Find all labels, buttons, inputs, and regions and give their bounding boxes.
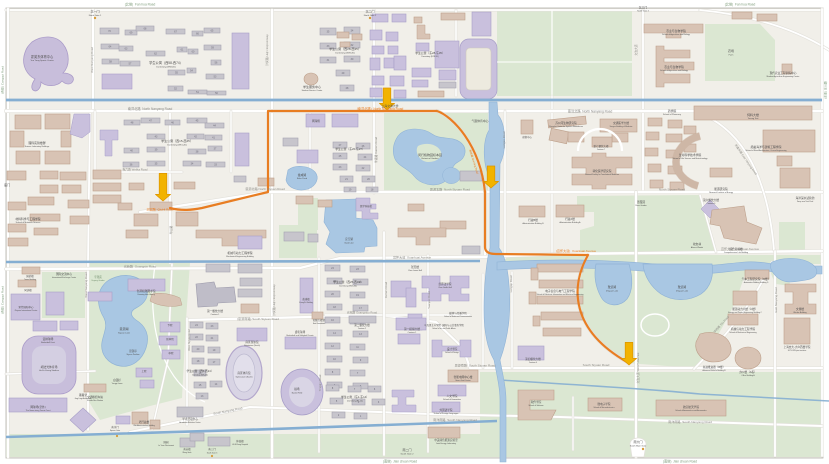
- svg-text:中院: 中院: [168, 351, 174, 355]
- svg-text:Student Service Center: Student Service Center: [302, 89, 323, 92]
- svg-text:Basketball and Volleyball Cour: Basketball and Volleyball Courts: [286, 334, 313, 337]
- svg-text:Automotive Building Building D: Automotive Building Building D: [744, 281, 769, 284]
- svg-text:Yangqi Lawn: Yangqi Lawn: [112, 383, 123, 385]
- svg-text:Gymnasium (South): Gymnasium (South): [236, 376, 253, 379]
- svg-text:宇琦苑: 宇琦苑: [94, 275, 102, 279]
- svg-text:School of Media and Communicat: School of Media and Communication: [444, 315, 472, 318]
- svg-text:思源亭: 思源亭: [129, 349, 137, 353]
- svg-text:国侨楼: 国侨楼: [26, 274, 34, 278]
- svg-text:Academic Activities Center: Academic Activities Center: [179, 421, 201, 424]
- svg-text:(思源南路) South Siyuan Road: (思源南路) South Siyuan Road: [237, 316, 279, 321]
- svg-text:Xangua Building of Medicine: Xangua Building of Medicine: [610, 126, 633, 128]
- svg-text:盛宅球场: 盛宅球场: [295, 330, 306, 334]
- svg-text:生命科学技术学院: 生命科学技术学院: [679, 153, 702, 157]
- svg-text:农业与生物学院: 农业与生物学院: [664, 65, 684, 69]
- svg-text:Wenbo Building: Wenbo Building: [793, 312, 806, 314]
- svg-text:East Nanyang Road: East Nanyang Road: [774, 287, 778, 312]
- svg-text:Tower Building: Tower Building: [24, 279, 36, 281]
- svg-text:思源北路 North Siyuan Road: 思源北路 North Siyuan Road: [245, 186, 285, 191]
- svg-text:第七餐饮大楼: 第七餐饮大楼: [593, 144, 609, 148]
- svg-text:学生公寓（西58-西74）: 学生公寓（西58-西74）: [149, 60, 183, 65]
- svg-text:East Foundation: East Foundation: [313, 322, 325, 325]
- svg-text:俊威湖: 俊威湖: [298, 173, 307, 177]
- svg-text:(西侧) Cangqui Road: (西侧) Cangqui Road: [0, 66, 5, 94]
- svg-text:West Yanyang Road: West Yanyang Road: [84, 272, 88, 298]
- svg-text:School of Agriculture and Biol: School of Agriculture and Biology: [662, 33, 690, 36]
- svg-text:The Swan string Tennis Court: The Swan string Tennis Court: [26, 409, 51, 412]
- svg-text:校友林: 校友林: [693, 242, 701, 246]
- svg-text:色调和瑞图书馆: 色调和瑞图书馆: [137, 289, 156, 293]
- svg-text:Canteen 1: Canteen 1: [211, 313, 220, 316]
- svg-text:海洋深水试验池: 海洋深水试验池: [796, 196, 815, 200]
- svg-text:North Gate 3: North Gate 3: [637, 10, 649, 13]
- svg-text:新中院: 新中院: [166, 337, 174, 341]
- svg-text:学生公寓（西28-西35）: 学生公寓（西28-西35）: [329, 46, 361, 51]
- svg-text:气膜体育中心: 气膜体育中心: [472, 119, 489, 123]
- svg-text:School of Materials Science: School of Materials Science: [16, 221, 42, 224]
- svg-text:外国语学院: 外国语学院: [440, 408, 453, 412]
- svg-text:Science Laboratory Buildings: Science Laboratory Buildings: [25, 145, 50, 148]
- svg-text:(北侧) Fan hua Road: (北侧) Fan hua Road: [125, 2, 156, 7]
- svg-text:学生服务中心: 学生服务中心: [303, 84, 321, 89]
- svg-text:饲料大楼: 饲料大楼: [747, 112, 759, 117]
- svg-text:School of Electronic Informati: School of Electronic Information and Ele…: [537, 293, 584, 296]
- svg-text:操场: 操场: [294, 387, 300, 391]
- svg-text:第二餐饮大楼: 第二餐饮大楼: [354, 323, 370, 327]
- svg-text:媒体与传播学院: 媒体与传播学院: [449, 311, 467, 315]
- svg-text:现代农业工程训练中心: 现代农业工程训练中心: [770, 71, 797, 75]
- svg-text:Tsuung Test: Tsuung Test: [748, 117, 759, 120]
- svg-text:Joint Energy Laboratory: Joint Energy Laboratory: [436, 442, 456, 445]
- svg-text:Xumen Road: Xumen Road: [384, 281, 388, 298]
- svg-text:Basketball Court: Basketball Court: [41, 341, 55, 344]
- svg-text:Square Gate: Square Gate: [110, 429, 120, 432]
- svg-text:中美绿色能源实验室: 中美绿色能源实验室: [434, 438, 458, 442]
- svg-text:West Nanyang Road: West Nanyang Road: [90, 47, 94, 73]
- svg-text:知新大楼堂: 知新大楼堂: [313, 318, 326, 322]
- svg-text:School of Software: School of Software: [528, 404, 543, 407]
- svg-text:紫竹国际中心: 紫竹国际中心: [18, 305, 34, 309]
- svg-text:Xuyang Garden: Xuyang Garden: [91, 279, 104, 282]
- svg-text:南大门: 南大门: [633, 439, 642, 444]
- svg-text:国园: 国园: [163, 440, 169, 444]
- svg-text:国际交流中心: 国际交流中心: [56, 272, 72, 276]
- svg-text:思源北路 North Siyuan Road: 思源北路 North Siyuan Road: [430, 187, 471, 192]
- svg-text:文博楼: 文博楼: [796, 307, 804, 311]
- svg-text:Farm: Farm: [729, 55, 734, 57]
- svg-text:School of Design: School of Design: [445, 352, 459, 354]
- svg-text:光新路 Guangxin Road: 光新路 Guangxin Road: [124, 264, 157, 269]
- svg-text:第一餐饮大楼: 第一餐饮大楼: [207, 309, 223, 313]
- svg-text:电子信息与电气工程学院: 电子信息与电气工程学院: [545, 289, 575, 293]
- svg-text:凯原法学院: 凯原法学院: [439, 282, 452, 286]
- svg-text:船舶海洋与建筑工程学院: 船舶海洋与建筑工程学院: [751, 145, 782, 149]
- svg-text:Canteen 2: Canteen 2: [358, 327, 366, 330]
- svg-text:菁菁堂: 菁菁堂: [79, 393, 87, 397]
- svg-text:仲英楼: 仲英楼: [236, 439, 244, 443]
- svg-text:理科实验楼群: 理科实验楼群: [28, 140, 45, 145]
- svg-text:Chan Gorilla Hall: Chan Gorilla Hall: [438, 287, 452, 289]
- svg-text:Yun Yong Sports Center: Yun Yong Sports Center: [30, 59, 54, 62]
- svg-text:Canteen 4: Canteen 4: [529, 361, 537, 364]
- svg-text:Siyuan Lake: Siyuan Lake: [118, 333, 131, 335]
- svg-text:南洋北路 North Nanyang Road: 南洋北路 North Nanyang Road: [128, 106, 173, 111]
- svg-text:南洋北路 North Nanyang Road: 南洋北路 North Nanyang Road: [568, 109, 613, 114]
- svg-text:Canteen 6: Canteen 6: [707, 202, 716, 205]
- svg-text:Deep sea Test Pool: Deep sea Test Pool: [797, 200, 814, 203]
- svg-text:第四餐饮大楼: 第四餐饮大楼: [525, 357, 541, 361]
- svg-text:下院: 下院: [167, 323, 173, 327]
- svg-text:Energy and Power Engineering B: Energy and Power Engineering Building C: [728, 312, 762, 314]
- svg-text:Basket Field: Basket Field: [292, 392, 302, 395]
- svg-text:闵行植物园标本园: 闵行植物园标本园: [418, 152, 442, 157]
- svg-text:School of Mechanical Engineeri: School of Mechanical Engineering: [729, 332, 756, 334]
- svg-text:交通枢纽车站: 交通枢纽车站: [87, 395, 103, 399]
- svg-text:School of Pharmacy: School of Pharmacy: [663, 114, 681, 116]
- svg-text:同济楼: 同济楼: [24, 288, 32, 292]
- svg-text:南二门: 南二门: [402, 447, 411, 452]
- svg-text:(南侧) Jian chuan Road: (南侧) Jian chuan Road: [663, 459, 697, 464]
- svg-text:文治大道 WenZh Avenue: 文治大道 WenZh Avenue: [636, 352, 640, 383]
- svg-text:Canteen 1: Canteen 1: [408, 331, 417, 334]
- svg-text:微电子学院: 微电子学院: [598, 402, 611, 406]
- svg-text:学生公寓（西5-西24）: 学生公寓（西5-西24）: [187, 369, 214, 373]
- svg-text:Zhiyuan Lake: Zhiyuan Lake: [606, 291, 619, 293]
- svg-text:交通医学大楼: 交通医学大楼: [613, 121, 629, 125]
- svg-text:Langqo Road: Langqo Road: [509, 275, 513, 292]
- svg-text:(东侧) 东川路: (东侧) 东川路: [823, 81, 828, 99]
- svg-text:School of Agriculture and Biol: School of Agriculture and Biology: [660, 69, 688, 72]
- svg-text:Chen Lower Hall: Chen Lower Hall: [408, 269, 423, 272]
- svg-text:School of Aeronautics and Astr: School of Aeronautics and Astronautics: [675, 409, 706, 412]
- svg-text:苏州河生物研究院: 苏州河生物研究院: [555, 121, 577, 125]
- svg-text:West Siyuan Road: West Siyuan Road: [187, 329, 191, 351]
- svg-text:白银杉: 白银杉: [113, 378, 121, 382]
- svg-text:农业与生物学院: 农业与生物学院: [666, 29, 686, 33]
- svg-text:南三门: 南三门: [208, 447, 216, 451]
- svg-text:行政B楼: 行政B楼: [528, 218, 538, 222]
- svg-text:网球场: 网球场: [312, 119, 320, 123]
- svg-text:蔷薇园: 蔷薇园: [637, 200, 645, 204]
- svg-text:设计学院: 设计学院: [447, 347, 458, 351]
- svg-text:Research Institute of Energy: Research Institute of Energy: [709, 191, 733, 194]
- svg-text:KuangPu Building: KuangPu Building: [299, 302, 312, 304]
- svg-text:(北侧) Fan hua Road: (北侧) Fan hua Road: [725, 2, 756, 7]
- svg-text:LG M.Dong Hospital: LG M.Dong Hospital: [232, 443, 249, 446]
- svg-text:School of Microelectronics: School of Microelectronics: [594, 406, 615, 409]
- svg-text:North Gate 1: North Gate 1: [89, 14, 102, 17]
- svg-text:宣怀大道 Xuankuai Avenue: 宣怀大道 Xuankuai Avenue: [393, 255, 431, 260]
- svg-text:Natatorium (South): Natatorium (South): [244, 344, 260, 347]
- svg-text:光裕路 Guangxiou Road: 光裕路 Guangxiou Road: [347, 311, 378, 315]
- svg-text:上院: 上院: [141, 369, 147, 373]
- svg-text:School of Life Science and Bio: School of Life Science and Biotechnology: [673, 157, 708, 160]
- svg-text:黄浦楼: 黄浦楼: [302, 297, 310, 301]
- svg-text:Yuanpei Road: Yuanpei Road: [427, 291, 431, 309]
- svg-text:Rose Garden: Rose Garden: [635, 204, 646, 207]
- svg-text:第一模拟大楼: 第一模拟大楼: [404, 327, 420, 331]
- svg-text:National Facility for Translat: National Facility for Translational Medi…: [585, 173, 619, 176]
- svg-text:North Siyuan Road: North Siyuan Road: [659, 188, 685, 192]
- svg-text:材料科学与工程学院: 材料科学与工程学院: [15, 217, 40, 221]
- svg-text:第六餐饮大楼: 第六餐饮大楼: [703, 198, 719, 202]
- svg-text:学森路 Xuesen Road: 学森路 Xuesen Road: [374, 137, 378, 164]
- svg-text:Dormitory (W58-65): Dormitory (W58-65): [156, 66, 175, 69]
- svg-text:张天楼: 张天楼: [411, 265, 419, 269]
- svg-text:能源动力六楼（C楼）: 能源动力六楼（C楼）: [732, 307, 757, 311]
- svg-text:Old Administration Building: Old Administration Building: [133, 424, 154, 427]
- svg-text:南洋门: 南洋门: [111, 425, 119, 429]
- svg-text:学生公寓（东1-东14）: 学生公寓（东1-东14）: [341, 395, 369, 399]
- svg-text:(西侧) Cangqui Road: (西侧) Cangqui Road: [0, 286, 5, 314]
- svg-text:XiaQi Lake: XiaQi Lake: [344, 243, 353, 245]
- svg-text:南洋南路 South Nanyang Road: 南洋南路 South Nanyang Road: [433, 417, 477, 422]
- svg-text:International Exchange Center: International Exchange Center: [52, 276, 77, 279]
- svg-text:Dormitory (W25-34): Dormitory (W25-34): [339, 285, 357, 288]
- svg-text:Zhiyuan International Center: Zhiyuan International Center: [15, 309, 38, 312]
- svg-text:南苏楼: 南苏楼: [183, 447, 191, 451]
- svg-text:沪闵路 Hujin Expressway: 沪闵路 Hujin Expressway: [265, 34, 269, 66]
- svg-text:思源湖: 思源湖: [119, 326, 128, 331]
- svg-text:学生公寓（西25-西34）: 学生公寓（西25-西34）: [333, 280, 363, 284]
- svg-text:Botanical Garden: Botanical Garden: [422, 157, 440, 160]
- svg-text:动物中心: 动物中心: [522, 135, 532, 139]
- svg-text:庙门: 庙门: [4, 182, 10, 187]
- svg-text:Siyuan Pavilion: Siyuan Pavilion: [127, 354, 140, 356]
- svg-text:Langen Road: Langen Road: [502, 131, 506, 148]
- svg-text:Mechanical Engineering Buildin: Mechanical Engineering Building: [226, 255, 253, 258]
- svg-text:Shanghai Center for Systems Bi: Shanghai Center for Systems Biomedicine: [549, 125, 583, 128]
- svg-text:南区游泳馆: 南区游泳馆: [246, 340, 259, 344]
- svg-text:软件学院: 软件学院: [531, 400, 542, 404]
- svg-text:学生公寓（西15-西45）: 学生公寓（西15-西45）: [161, 138, 193, 143]
- svg-text:Shuttle Bus Station: Shuttle Bus Station: [87, 399, 103, 402]
- svg-text:网球场(室外): 网球场(室外): [30, 405, 45, 409]
- svg-text:药学院: 药学院: [668, 109, 677, 113]
- svg-text:Canteen 7: Canteen 7: [597, 148, 605, 151]
- svg-text:School of Foreign Languages: School of Foreign Languages: [434, 412, 459, 415]
- svg-text:North Gate 2: North Gate 2: [364, 14, 377, 17]
- svg-text:South Siyuan Road: South Siyuan Road: [583, 363, 610, 367]
- svg-text:老行政楼: 老行政楼: [139, 420, 150, 424]
- svg-text:Administration Building B: Administration Building B: [522, 222, 544, 225]
- svg-text:South Gate 2: South Gate 2: [401, 453, 415, 456]
- svg-text:南洋南路 South Nanyang Road: 南洋南路 South Nanyang Road: [668, 419, 712, 424]
- svg-text:能源研究院: 能源研究院: [714, 187, 728, 191]
- svg-text:School of Int. and Public Affa: School of Int. and Public Affairs: [432, 327, 455, 330]
- svg-text:农场: 农场: [728, 48, 734, 53]
- svg-text:Wang Gerle: Wang Gerle: [183, 451, 192, 454]
- svg-text:Modern Agriculture Engineering: Modern Agriculture Engineering Center: [767, 75, 800, 78]
- svg-text:北二门: 北二门: [365, 9, 374, 14]
- svg-text:(宣怀大道) Xuankuai Avenue: (宣怀大道) Xuankuai Avenue: [556, 248, 596, 253]
- svg-text:机械与动力工程学院: 机械与动力工程学院: [227, 251, 252, 255]
- svg-text:Zhiyuan Lake: Zhiyuan Lake: [676, 291, 689, 293]
- svg-text:华山路: 华山路: [169, 226, 173, 235]
- svg-text:致远湖: 致远湖: [608, 285, 617, 289]
- svg-text:South Main Gate: South Main Gate: [630, 445, 647, 448]
- svg-text:Tingqin Road: Tingqin Road: [318, 374, 322, 391]
- svg-text:宜空湖: 宜空湖: [345, 237, 353, 241]
- svg-text:Yanming Hao Library: Yanming Hao Library: [137, 293, 155, 296]
- svg-text:学生公寓（东28-东35）: 学生公寓（东28-东35）: [415, 51, 445, 55]
- svg-text:综合实验楼: 综合实验楼: [729, 247, 743, 251]
- svg-text:南区体育馆: 南区体育馆: [238, 371, 251, 375]
- svg-text:Hu-Fa Kuang Stadium: Hu-Fa Kuang Stadium: [39, 369, 59, 372]
- svg-text:School of Naval Architecture,: School of Naval Architecture, Ocean Engi…: [746, 149, 787, 152]
- svg-text:马克思主义学院 国际与公共事务学院: 马克思主义学院 国际与公共事务学院: [424, 323, 464, 327]
- svg-text:SJTU-VW joint institute: SJTU-VW joint institute: [788, 349, 806, 352]
- svg-text:浏实路 QiuHi Road: 浏实路 QiuHi Road: [147, 207, 174, 212]
- svg-text:Comprehensive Lab Building: Comprehensive Lab Building: [724, 251, 748, 254]
- svg-text:(南侧) Jian chuan Road: (南侧) Jian chuan Road: [383, 459, 417, 464]
- svg-text:胡法光体育场: 胡法光体育场: [41, 365, 58, 369]
- svg-text:霍英东体育中心: 霍英东体育中心: [31, 54, 54, 59]
- svg-text:学生公寓（东20-东27）: 学生公寓（东20-东27）: [335, 147, 365, 151]
- svg-text:致远湖: 致远湖: [678, 285, 687, 289]
- svg-text:上海交通大学: 上海交通大学: [382, 104, 399, 108]
- svg-text:人文学院: 人文学院: [447, 394, 458, 398]
- svg-text:Alumni Woods: Alumni Woods: [691, 246, 703, 249]
- svg-text:行政A楼: 行政A楼: [565, 217, 575, 221]
- svg-text:Dormitory (W15-45): Dormitory (W15-45): [167, 144, 186, 147]
- svg-text:文治大道: 文治大道: [634, 44, 638, 55]
- svg-text:学术活动中心: 学术活动中心: [182, 417, 198, 421]
- svg-text:办公楼（A栋）: 办公楼（A栋）: [739, 370, 756, 374]
- svg-text:机械与动力工程学院: 机械与动力工程学院: [731, 327, 755, 331]
- svg-text:航空航天学院: 航空航天学院: [683, 405, 699, 409]
- svg-text:上海交大-大众西楼学院: 上海交大-大众西楼学院: [784, 345, 811, 349]
- svg-text:转化医学研究院: 转化医学研究院: [593, 169, 612, 173]
- svg-text:Lu Yuan Restaurant: Lu Yuan Restaurant: [158, 444, 174, 447]
- svg-text:Bahu Pond: Bahu Pond: [297, 178, 307, 180]
- svg-text:School of Humanities: School of Humanities: [443, 398, 461, 401]
- svg-text:先进推进器（B楼）: 先进推进器（B楼）: [703, 365, 725, 369]
- svg-text:Dormitory (W5-24): Dormitory (W5-24): [192, 374, 208, 377]
- svg-text:北三门: 北三门: [639, 6, 648, 10]
- svg-text:Dormitory (E1-14): Dormitory (E1-14): [347, 400, 363, 403]
- svg-text:思源南路 South Siyuan Road: 思源南路 South Siyuan Road: [455, 363, 496, 368]
- svg-text:北一门: 北一门: [90, 9, 99, 14]
- svg-text:Office Building A: Office Building A: [741, 374, 755, 377]
- svg-text:Administration Building A: Administration Building A: [560, 221, 582, 224]
- svg-text:智能电网中心楼: 智能电网中心楼: [454, 375, 473, 379]
- svg-text:Dormitory (W28-35): Dormitory (W28-35): [335, 52, 354, 55]
- svg-text:South Gate 3: South Gate 3: [207, 452, 218, 455]
- svg-text:梅六路 Weilka Road: 梅六路 Weilka Road: [123, 168, 148, 172]
- svg-text:篮排球场: 篮排球场: [43, 337, 54, 341]
- svg-text:沪闵路 Hujin Expressway: 沪闵路 Hujin Expressway: [272, 284, 276, 316]
- svg-text:Smart Grid Center: Smart Grid Center: [455, 379, 471, 382]
- svg-text:Advanced Vehicle Building B: Advanced Vehicle Building B: [703, 369, 727, 372]
- svg-text:汽车工程研究院（D楼）: 汽车工程研究院（D楼）: [742, 277, 771, 281]
- svg-text:Dormitory (E28-35): Dormitory (E28-35): [421, 55, 438, 58]
